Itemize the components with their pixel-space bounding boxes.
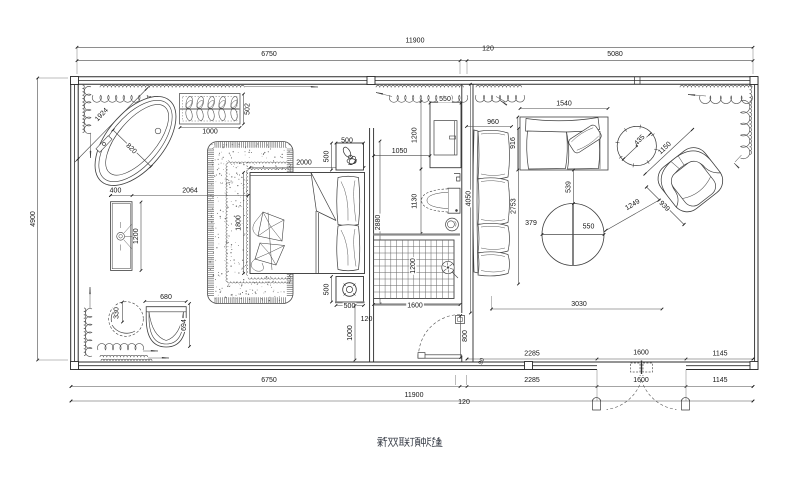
svg-text:2000: 2000 bbox=[296, 160, 312, 167]
svg-text:1200: 1200 bbox=[410, 258, 417, 274]
svg-text:500: 500 bbox=[341, 138, 353, 145]
svg-text:120: 120 bbox=[361, 316, 373, 323]
svg-text:120: 120 bbox=[482, 46, 494, 53]
svg-text:2880: 2880 bbox=[375, 215, 382, 231]
svg-text:502: 502 bbox=[245, 103, 252, 115]
svg-text:694: 694 bbox=[181, 319, 188, 331]
svg-text:500: 500 bbox=[324, 151, 331, 163]
svg-text:1200: 1200 bbox=[412, 127, 419, 143]
svg-text:1540: 1540 bbox=[556, 101, 572, 108]
svg-text:1000: 1000 bbox=[202, 129, 218, 136]
svg-text:1145: 1145 bbox=[712, 377, 727, 384]
svg-text:5080: 5080 bbox=[607, 51, 623, 58]
svg-text:550: 550 bbox=[439, 96, 451, 103]
svg-text:379: 379 bbox=[525, 220, 537, 227]
svg-text:6750: 6750 bbox=[261, 51, 277, 58]
svg-text:550: 550 bbox=[583, 224, 595, 231]
svg-text:2285: 2285 bbox=[524, 377, 540, 384]
svg-text:1200: 1200 bbox=[133, 228, 140, 244]
svg-text:2753: 2753 bbox=[511, 198, 518, 214]
svg-text:1050: 1050 bbox=[392, 148, 408, 155]
svg-text:800: 800 bbox=[462, 330, 469, 342]
svg-text:1600: 1600 bbox=[633, 350, 649, 357]
svg-text:400: 400 bbox=[110, 188, 122, 195]
svg-text:3030: 3030 bbox=[571, 301, 587, 308]
svg-text:916: 916 bbox=[510, 137, 517, 149]
svg-text:11900: 11900 bbox=[405, 392, 424, 399]
svg-text:539: 539 bbox=[566, 181, 573, 193]
svg-text:11900: 11900 bbox=[406, 38, 425, 45]
svg-text:6750: 6750 bbox=[261, 377, 277, 384]
svg-text:1800: 1800 bbox=[236, 215, 243, 231]
svg-text:500: 500 bbox=[324, 284, 331, 296]
svg-text:1000: 1000 bbox=[347, 325, 354, 341]
svg-text:4900: 4900 bbox=[30, 211, 37, 227]
svg-text:2064: 2064 bbox=[182, 188, 198, 195]
svg-text:2285: 2285 bbox=[524, 351, 540, 358]
svg-text:4050: 4050 bbox=[465, 191, 472, 207]
svg-text:680: 680 bbox=[160, 294, 172, 301]
svg-text:1130: 1130 bbox=[412, 194, 419, 209]
svg-text:120: 120 bbox=[458, 399, 470, 406]
svg-text:330: 330 bbox=[113, 307, 120, 319]
svg-text:1145: 1145 bbox=[712, 351, 727, 358]
svg-text:960: 960 bbox=[487, 119, 499, 126]
svg-text:1600: 1600 bbox=[407, 302, 423, 309]
